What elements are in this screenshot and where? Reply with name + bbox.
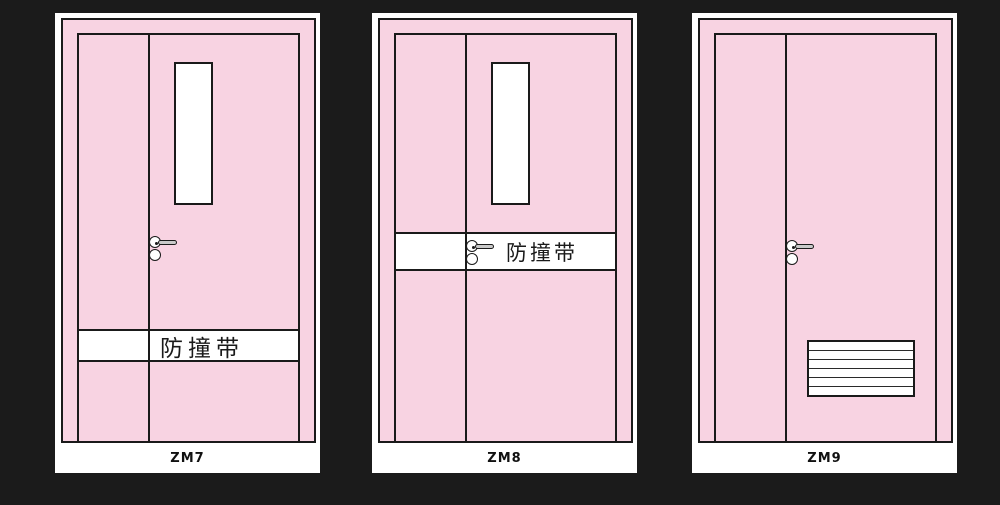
louver-slat — [809, 368, 913, 377]
anti-collision-strip: 防撞带 — [79, 329, 298, 362]
door-figure-zm7: 防撞带 ZM7 — [55, 13, 320, 473]
louver-slat — [809, 377, 913, 386]
door-handle — [786, 240, 816, 266]
door-code-label: ZM8 — [372, 443, 637, 473]
leaf-divider — [785, 33, 787, 443]
door-handle — [466, 240, 496, 266]
door-figure-zm8: 防撞带 ZM8 — [372, 13, 637, 473]
door-code-label: ZM7 — [55, 443, 320, 473]
handle-lever-icon — [795, 244, 814, 249]
handle-lever-icon — [475, 244, 494, 249]
louver-slat — [809, 350, 913, 359]
anti-collision-strip-label: 防撞带 — [160, 329, 244, 363]
handle-knob-icon — [149, 249, 161, 261]
anti-collision-strip-label: 防撞带 — [506, 237, 578, 267]
handle-knob-icon — [786, 253, 798, 265]
anti-collision-strip: 防撞带 — [396, 232, 615, 271]
door-figure-zm9: ZM9 — [692, 13, 957, 473]
door-code-label: ZM9 — [692, 443, 957, 473]
door-diagrams: 防撞带 ZM7 防撞带 ZM8 — [0, 0, 1000, 505]
leaf-divider — [465, 33, 467, 443]
louver-slat — [809, 386, 913, 395]
handle-knob-icon — [466, 253, 478, 265]
door-handle — [149, 236, 179, 262]
louver-slat — [809, 359, 913, 368]
handle-lever-icon — [158, 240, 177, 245]
vision-window — [491, 62, 530, 205]
vision-window — [174, 62, 213, 205]
ventilation-louver — [807, 340, 915, 397]
louver-slat — [809, 342, 913, 350]
